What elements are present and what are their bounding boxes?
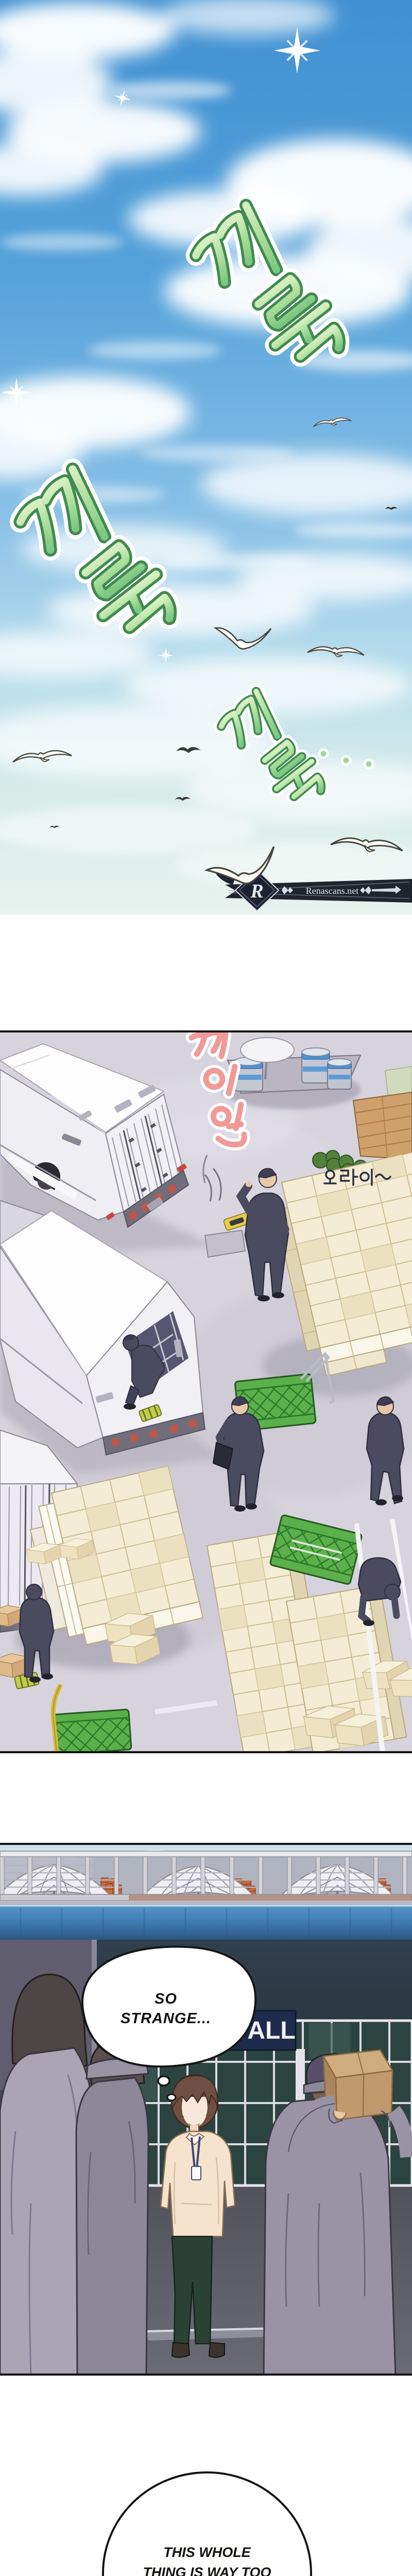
svg-text:Renascans.net: Renascans.net bbox=[306, 886, 358, 896]
svg-text:THING IS WAY TOO: THING IS WAY TOO bbox=[143, 2565, 271, 2576]
svg-text:THIS WHOLE: THIS WHOLE bbox=[163, 2545, 251, 2560]
svg-text:SO: SO bbox=[154, 1991, 177, 2007]
svg-text:STRANGE...: STRANGE... bbox=[121, 2010, 211, 2027]
svg-text:R: R bbox=[250, 880, 263, 902]
svg-text:ALL: ALL bbox=[247, 2017, 295, 2044]
